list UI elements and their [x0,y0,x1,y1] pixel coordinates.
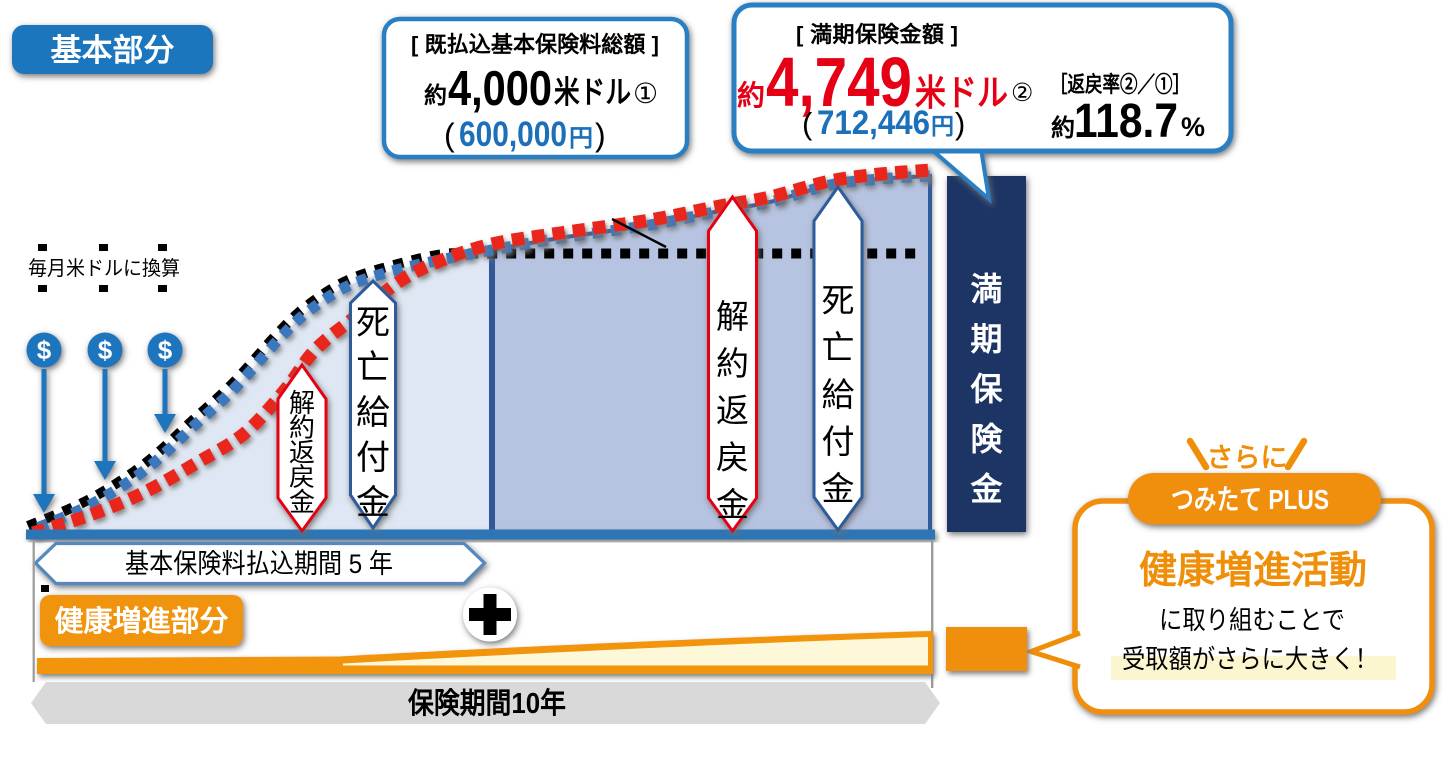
svg-text:健康増進部分: 健康増進部分 [54,604,228,638]
svg-text:$: $ [98,335,113,365]
svg-text:$: $ [37,335,52,365]
svg-text:%: % [1181,112,1205,142]
svg-text:さらに: さらに [1207,443,1288,473]
svg-text:600,000: 600,000 [459,115,567,154]
svg-text:死亡給付金: 死亡給付金 [822,282,855,507]
svg-text:118.7: 118.7 [1074,95,1178,148]
svg-text:約: 約 [737,79,765,111]
svg-text:死亡給付金: 死亡給付金 [356,304,390,522]
svg-text:約: 約 [1051,114,1075,142]
svg-text:［返戻率②／①］: ［返戻率②／①］ [1050,72,1190,97]
svg-text:受取額がさらに大きく！: 受取額がさらに大きく！ [1122,644,1378,674]
svg-text:①: ① [633,78,658,109]
svg-text:$: $ [158,335,173,365]
svg-text:(: ( [802,106,813,141]
svg-text:約: 約 [424,82,447,108]
svg-text:基本部分: 基本部分 [51,33,175,68]
svg-text:つみたて PLUS: つみたて PLUS [1171,484,1329,515]
svg-text:712,446: 712,446 [817,104,930,142]
svg-text:健康増進活動: 健康増進活動 [1139,549,1367,592]
svg-text:米ドル: 米ドル [554,75,631,110]
svg-text:円: 円 [931,113,954,139]
svg-text:満期保険金: 満期保険金 [969,271,1003,507]
svg-text:4,000: 4,000 [448,62,552,116]
svg-text:): ) [595,117,606,153]
svg-text:解約返戻金: 解約返戻金 [716,298,749,523]
svg-text:[ 既払込基本保険料総額 ]: [ 既払込基本保険料総額 ] [411,32,659,57]
svg-text:毎月米ドルに換算: 毎月米ドルに換算 [28,257,180,280]
svg-text:(: ( [444,117,455,153]
svg-text:②: ② [1011,79,1033,107]
svg-text:に取り組むことで: に取り組むことで [1159,605,1345,635]
svg-text:円: 円 [569,125,593,152]
svg-text:保険期間10年: 保険期間10年 [407,686,566,720]
svg-text:基本保険料払込期間 5 年: 基本保険料払込期間 5 年 [125,549,393,579]
svg-text:): ) [955,106,965,141]
svg-text:解約返戻金: 解約返戻金 [289,388,315,517]
